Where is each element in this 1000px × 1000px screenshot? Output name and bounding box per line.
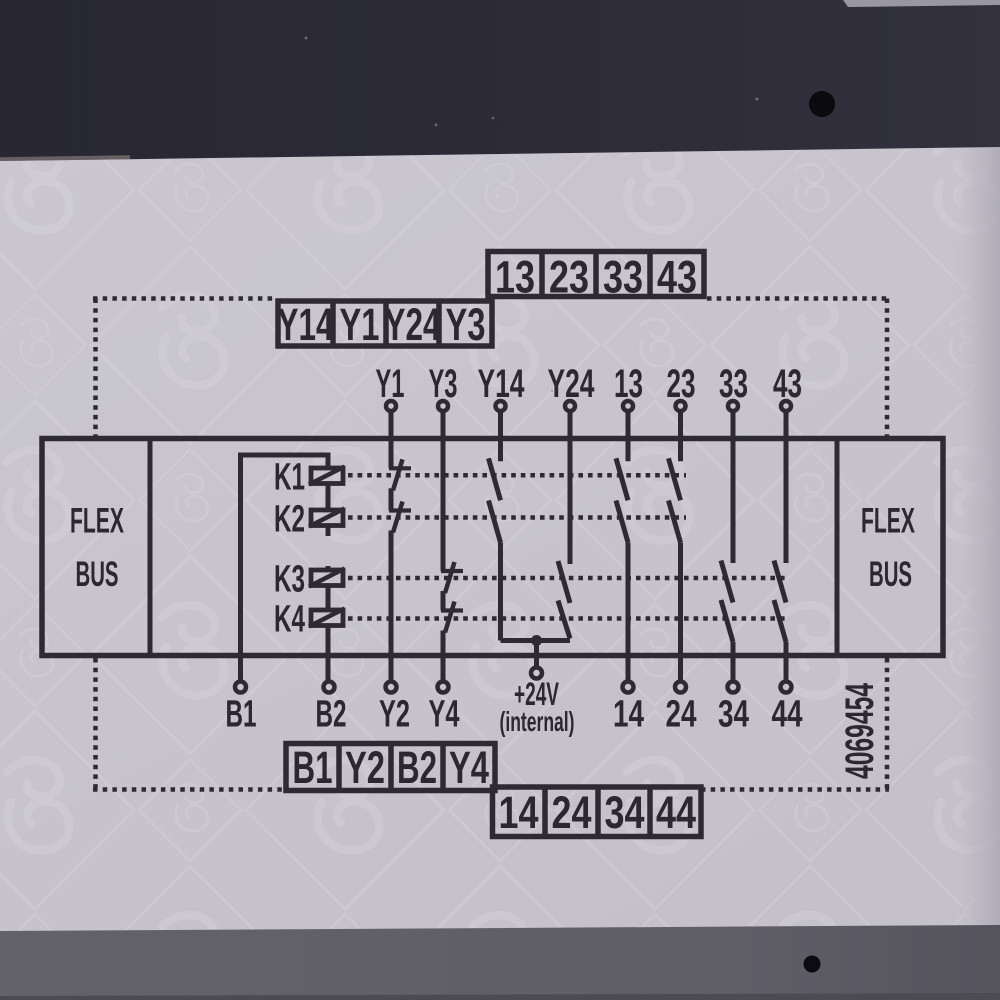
svg-text:FLEX: FLEX xyxy=(861,502,915,541)
svg-text:34: 34 xyxy=(718,694,749,736)
svg-text:Y3: Y3 xyxy=(446,299,486,350)
svg-text:B1: B1 xyxy=(293,742,333,793)
svg-text:K1: K1 xyxy=(274,457,305,499)
svg-text:BUS: BUS xyxy=(76,555,119,594)
svg-text:33: 33 xyxy=(603,252,643,303)
svg-text:34: 34 xyxy=(605,787,645,838)
svg-text:K4: K4 xyxy=(274,599,305,641)
svg-text:44: 44 xyxy=(656,787,696,838)
svg-text:FLEX: FLEX xyxy=(70,502,124,541)
svg-text:K3: K3 xyxy=(274,559,305,601)
svg-text:K2: K2 xyxy=(274,499,305,541)
svg-text:Y1: Y1 xyxy=(340,299,380,350)
svg-text:13: 13 xyxy=(495,252,535,303)
svg-text:B1: B1 xyxy=(226,694,257,736)
svg-text:BUS: BUS xyxy=(869,555,912,594)
svg-text:B2: B2 xyxy=(316,694,347,736)
svg-text:Y2: Y2 xyxy=(345,742,385,793)
svg-text:4069454: 4069454 xyxy=(838,683,882,779)
svg-text:24: 24 xyxy=(552,787,592,838)
svg-text:(internal): (internal) xyxy=(500,706,575,737)
svg-text:44: 44 xyxy=(772,694,803,736)
svg-text:Y14: Y14 xyxy=(278,299,334,350)
svg-text:Y4: Y4 xyxy=(429,694,460,736)
svg-text:Y2: Y2 xyxy=(379,694,410,736)
svg-text:B2: B2 xyxy=(397,742,437,793)
svg-text:Y4: Y4 xyxy=(449,742,489,793)
svg-text:24: 24 xyxy=(666,694,697,736)
svg-text:Y24: Y24 xyxy=(385,299,441,350)
svg-text:14: 14 xyxy=(613,694,644,736)
svg-text:43: 43 xyxy=(657,252,697,303)
svg-text:14: 14 xyxy=(499,787,539,838)
svg-text:23: 23 xyxy=(549,252,589,303)
